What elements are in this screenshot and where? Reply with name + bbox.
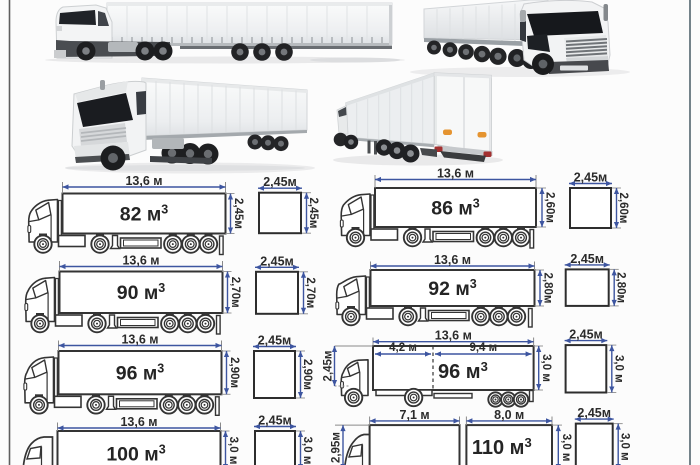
- svg-text:3,0 м: 3,0 м: [301, 437, 313, 465]
- svg-text:2,45м: 2,45м: [232, 198, 244, 229]
- svg-text:13,6 м: 13,6 м: [437, 167, 474, 181]
- svg-text:82 м3: 82 м3: [120, 203, 169, 226]
- svg-text:4,2 м: 4,2 м: [389, 342, 417, 354]
- svg-text:86 м3: 86 м3: [431, 197, 480, 220]
- svg-text:2,45м: 2,45м: [307, 197, 319, 228]
- svg-text:96 м3: 96 м3: [438, 359, 488, 383]
- svg-text:2,45м: 2,45м: [577, 406, 611, 420]
- svg-text:2,45м: 2,45м: [260, 254, 294, 268]
- svg-text:13,6 м: 13,6 м: [125, 174, 162, 188]
- svg-text:2,60м: 2,60м: [543, 192, 555, 223]
- svg-text:90 м3: 90 м3: [117, 281, 166, 304]
- svg-text:2,45м: 2,45м: [570, 252, 604, 266]
- svg-text:3,0 м: 3,0 м: [612, 355, 624, 383]
- svg-text:2,95м: 2,95м: [331, 432, 343, 463]
- svg-text:3,0 м: 3,0 м: [540, 354, 552, 382]
- svg-text:8,0 м: 8,0 м: [494, 408, 524, 422]
- svg-text:96 м3: 96 м3: [116, 362, 165, 385]
- svg-text:100 м3: 100 м3: [106, 443, 165, 465]
- svg-text:13,6 м: 13,6 м: [120, 415, 157, 429]
- svg-text:2,45м: 2,45м: [323, 351, 335, 382]
- svg-text:2,90м: 2,90м: [228, 357, 240, 388]
- svg-text:2,45м: 2,45м: [258, 414, 292, 428]
- svg-text:2,45м: 2,45м: [574, 171, 608, 185]
- svg-text:7,1 м: 7,1 м: [400, 408, 430, 422]
- svg-text:13,6 м: 13,6 м: [121, 333, 158, 347]
- svg-text:3,0 м: 3,0 м: [619, 433, 631, 461]
- svg-text:9,4 м: 9,4 м: [469, 342, 497, 354]
- svg-text:2,70м: 2,70м: [229, 277, 241, 308]
- svg-text:2,80м: 2,80м: [615, 272, 627, 303]
- svg-text:110 м3: 110 м3: [472, 435, 532, 459]
- svg-text:2,70м: 2,70м: [304, 277, 316, 308]
- svg-text:2,45м: 2,45м: [263, 175, 297, 189]
- svg-text:3,0 м: 3,0 м: [560, 434, 572, 462]
- svg-text:2,90м: 2,90м: [301, 359, 313, 390]
- svg-text:13,6 м: 13,6 м: [434, 253, 471, 267]
- svg-text:2,45м: 2,45м: [258, 334, 292, 348]
- svg-text:13,6 м: 13,6 м: [122, 254, 159, 268]
- svg-text:2,60м: 2,60м: [617, 193, 629, 224]
- svg-text:2,80м: 2,80м: [541, 273, 553, 304]
- svg-text:92 м3: 92 м3: [428, 277, 477, 300]
- svg-text:2,45м: 2,45м: [569, 328, 603, 342]
- svg-text:3,0 м: 3,0 м: [227, 437, 239, 465]
- svg-text:13,6 м: 13,6 м: [435, 329, 472, 343]
